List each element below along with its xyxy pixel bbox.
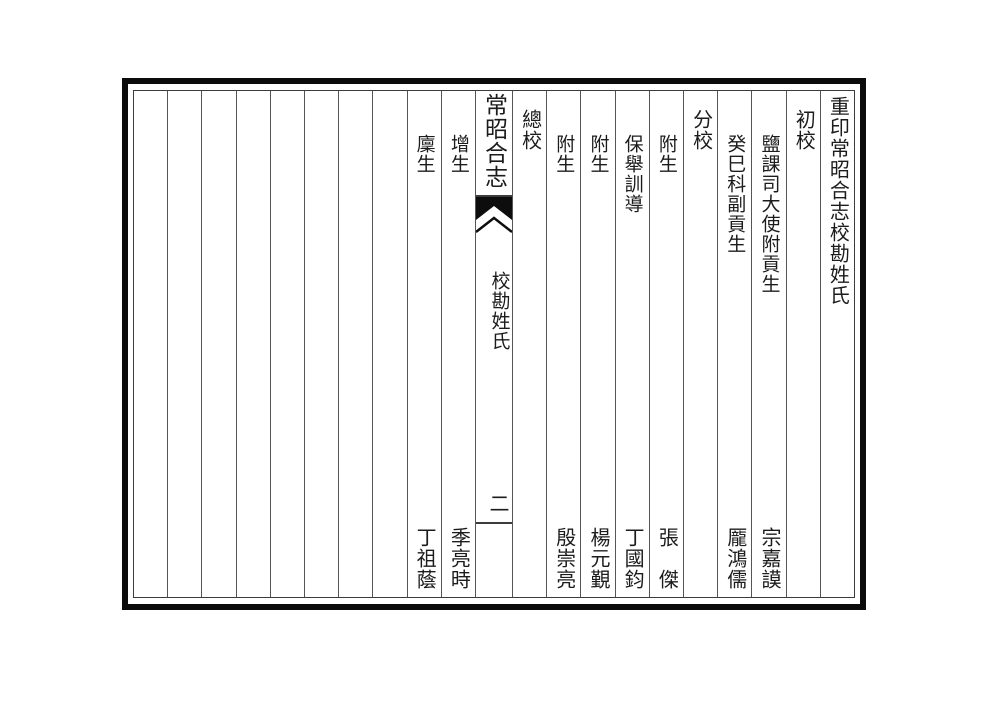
empty-column (270, 91, 304, 597)
column-proofreader-pang-hongru: 癸巳科副貢生 龎鴻儒 (717, 91, 751, 597)
book-page: 重印常昭合志校勘姓氏 初校 鹽課司大使附貢生 宗嘉謨 癸巳科副貢生 龎鴻儒 分校… (122, 78, 866, 610)
empty-column (134, 91, 167, 597)
person-title: 癸巳科副貢生 (725, 134, 744, 254)
empty-column (372, 91, 406, 597)
person-title: 廩生 (415, 134, 434, 174)
person-name: 張 傑 (656, 527, 676, 590)
role-label-chief-proofreading: 總校 (520, 109, 540, 151)
column-role-section-proofreading: 分校 (683, 91, 717, 597)
column-role-chief-proofreading: 總校 (512, 91, 546, 597)
empty-column (304, 91, 338, 597)
inner-frame: 重印常昭合志校勘姓氏 初校 鹽課司大使附貢生 宗嘉謨 癸巳科副貢生 龎鴻儒 分校… (133, 90, 855, 598)
section-label: 校勘姓氏 (489, 271, 508, 351)
person-title: 鹽課司大使附貢生 (759, 134, 778, 294)
role-label-section-proofreading: 分校 (691, 109, 711, 151)
person-title: 保舉訓導 (623, 134, 642, 214)
column-proofreader-ding-guojun: 保舉訓導 丁國鈞 (615, 91, 649, 597)
column-proofreader-yin-chongliang: 附生 殷崇亮 (546, 91, 580, 597)
page-number-label: 二 (487, 493, 507, 514)
banxin-column: 常昭合志 校勘姓氏 二 (475, 91, 512, 597)
book-title-label: 常昭合志 (482, 93, 505, 189)
book-header-title: 重印常昭合志校勘姓氏 (827, 96, 847, 306)
person-title: 附生 (657, 134, 676, 174)
empty-column (201, 91, 235, 597)
person-name: 宗嘉謨 (759, 527, 779, 590)
person-name: 丁祖蔭 (414, 527, 434, 590)
person-name: 龎鴻儒 (725, 527, 745, 590)
column-role-first-proofreading: 初校 (786, 91, 820, 597)
person-title: 附生 (588, 134, 607, 174)
column-proofreader-yang-yuanjin: 附生 楊元覲 (580, 91, 614, 597)
empty-column (167, 91, 201, 597)
column-proofreader-ji-liangshi: 增生 季亮時 (441, 91, 475, 597)
banxin-rule-bottom (476, 522, 512, 524)
person-name: 楊元覲 (588, 527, 608, 590)
person-name: 丁國鈞 (622, 527, 642, 590)
fishtail-icon (476, 196, 512, 236)
column-book-header: 重印常昭合志校勘姓氏 (820, 91, 854, 597)
column-proofreader-zong-jiamo: 鹽課司大使附貢生 宗嘉謨 (751, 91, 785, 597)
person-name: 季亮時 (448, 527, 468, 590)
empty-column (236, 91, 270, 597)
empty-column (338, 91, 372, 597)
person-name: 殷崇亮 (554, 527, 574, 590)
role-label-first-proofreading: 初校 (793, 109, 813, 151)
column-proofreader-ding-zuyin: 廩生 丁祖蔭 (407, 91, 441, 597)
column-proofreader-zhang-jie: 附生 張 傑 (649, 91, 683, 597)
person-title: 增生 (449, 134, 468, 174)
person-title: 附生 (554, 134, 573, 174)
